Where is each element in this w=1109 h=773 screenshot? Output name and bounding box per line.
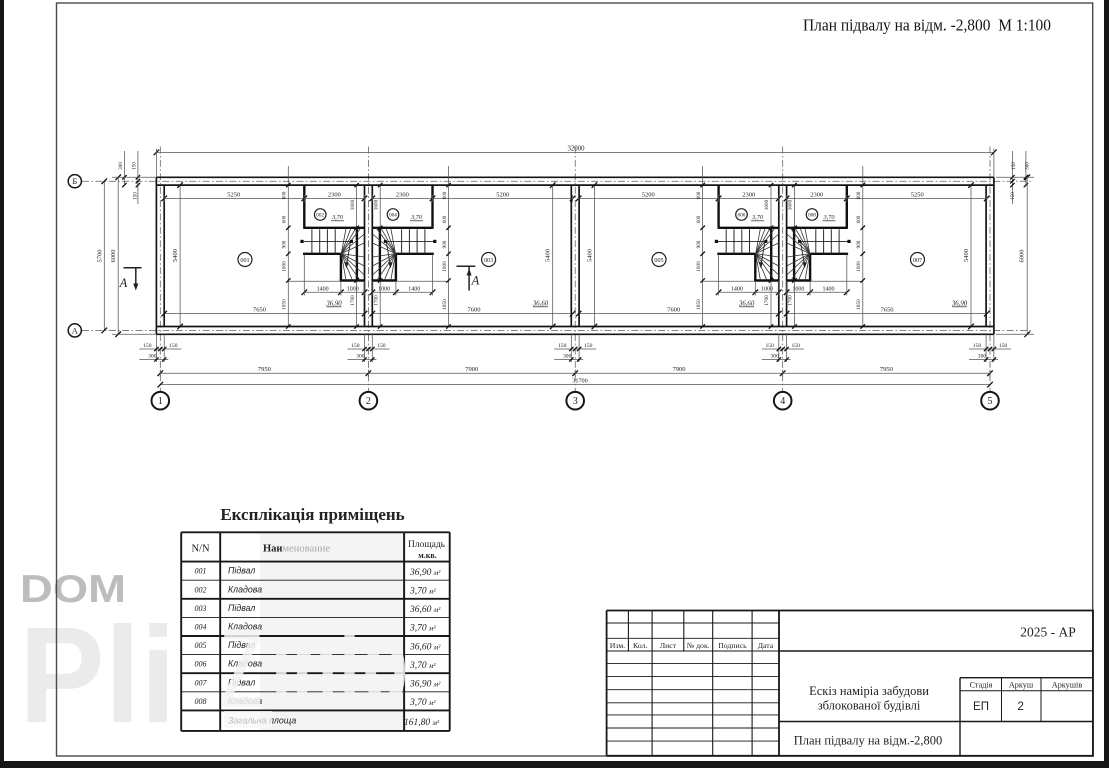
svg-text:3,70 м²: 3,70 м² [409, 624, 436, 634]
svg-text:300: 300 [1024, 162, 1030, 170]
svg-text:1850: 1850 [442, 299, 448, 310]
svg-text:300: 300 [978, 353, 987, 359]
svg-text:003: 003 [484, 257, 493, 264]
svg-text:1000: 1000 [856, 261, 862, 272]
svg-text:N/N: N/N [191, 544, 210, 555]
svg-text:900: 900 [856, 240, 862, 248]
svg-text:900: 900 [282, 240, 288, 248]
svg-text:2: 2 [1017, 701, 1023, 713]
svg-text:5200: 5200 [642, 192, 655, 199]
svg-text:32000: 32000 [568, 146, 586, 153]
svg-text:3,70: 3,70 [751, 214, 764, 221]
svg-text:Аркушів: Аркушів [1052, 681, 1083, 690]
svg-text:1000: 1000 [282, 261, 288, 272]
svg-text:7650: 7650 [881, 307, 894, 314]
svg-text:5400: 5400 [963, 249, 970, 262]
svg-text:004: 004 [195, 623, 207, 632]
svg-text:001: 001 [240, 257, 249, 264]
svg-text:300: 300 [563, 353, 572, 359]
svg-text:300: 300 [771, 353, 780, 359]
svg-text:1400: 1400 [731, 286, 743, 292]
svg-text:008: 008 [195, 697, 207, 706]
svg-text:3,70: 3,70 [410, 214, 423, 221]
svg-text:150: 150 [558, 343, 567, 349]
svg-text:36,60 м²: 36,60 м² [409, 642, 441, 652]
svg-text:900: 900 [696, 240, 702, 248]
svg-text:А: А [471, 274, 480, 288]
svg-text:6000: 6000 [1019, 250, 1026, 263]
svg-text:6000: 6000 [110, 250, 117, 263]
svg-text:36,90: 36,90 [325, 300, 342, 307]
svg-text:800: 800 [696, 191, 702, 199]
svg-text:3,70 м²: 3,70 м² [409, 587, 436, 597]
svg-text:2: 2 [366, 396, 371, 407]
svg-text:150: 150 [132, 162, 138, 170]
svg-text:4: 4 [780, 396, 785, 407]
svg-text:5400: 5400 [545, 249, 552, 262]
svg-text:3,70 м²: 3,70 м² [409, 698, 436, 708]
svg-text:002: 002 [316, 213, 324, 219]
svg-text:001: 001 [195, 567, 207, 576]
svg-text:2300: 2300 [396, 192, 409, 199]
svg-text:Лист: Лист [660, 641, 677, 650]
svg-text:600: 600 [282, 215, 288, 223]
svg-text:Кладова: Кладова [228, 584, 262, 594]
svg-text:1600: 1600 [764, 199, 770, 210]
svg-text:150: 150 [351, 343, 360, 349]
svg-text:5400: 5400 [586, 249, 593, 262]
svg-text:600: 600 [696, 215, 702, 223]
svg-text:150: 150 [132, 192, 138, 200]
svg-text:300: 300 [148, 353, 157, 359]
svg-text:150: 150 [792, 343, 801, 349]
svg-text:5: 5 [988, 396, 993, 407]
svg-text:План підвалу на відм.-2,800: План підвалу на відм.-2,800 [794, 734, 943, 748]
svg-text:150: 150 [999, 343, 1008, 349]
svg-text:Аркуш: Аркуш [1009, 681, 1034, 690]
svg-text:600: 600 [442, 215, 448, 223]
svg-text:Б: Б [72, 176, 77, 186]
svg-text:008: 008 [808, 213, 816, 219]
svg-text:7600: 7600 [667, 307, 680, 314]
svg-text:Площадь: Площадь [408, 540, 446, 550]
svg-text:Підвал: Підвал [228, 603, 255, 613]
svg-text:800: 800 [282, 191, 288, 199]
svg-text:150: 150 [766, 343, 775, 349]
svg-text:7600: 7600 [468, 307, 481, 314]
svg-text:007: 007 [195, 678, 208, 687]
svg-text:ЕП: ЕП [973, 701, 989, 713]
svg-text:150: 150 [1010, 192, 1016, 200]
svg-text:7900: 7900 [465, 366, 478, 373]
svg-text:Подпись: Подпись [718, 641, 747, 650]
svg-text:1850: 1850 [696, 299, 702, 310]
svg-text:150: 150 [1011, 162, 1017, 170]
svg-text:300: 300 [356, 353, 365, 359]
svg-text:3,70 м²: 3,70 м² [409, 661, 436, 671]
svg-text:800: 800 [856, 191, 862, 199]
svg-text:5700: 5700 [96, 250, 103, 263]
svg-text:1700: 1700 [764, 295, 770, 306]
svg-text:5250: 5250 [911, 192, 924, 199]
svg-text:№ док.: № док. [687, 641, 710, 650]
svg-text:150: 150 [143, 343, 152, 349]
svg-text:005: 005 [654, 257, 663, 264]
svg-text:Наименование: Наименование [263, 544, 330, 555]
svg-text:А: А [119, 276, 128, 290]
svg-text:Изм.: Изм. [610, 641, 626, 650]
svg-text:7900: 7900 [673, 366, 686, 373]
svg-text:300: 300 [118, 162, 124, 170]
svg-text:2025 - АР: 2025 - АР [1020, 625, 1076, 640]
svg-text:План підвалу на відм. -2,800: План підвалу на відм. -2,800 М 1:100 [803, 16, 1051, 35]
svg-text:Стадія: Стадія [970, 681, 993, 690]
svg-text:36,90: 36,90 [951, 300, 968, 307]
svg-text:1700: 1700 [350, 295, 356, 306]
svg-text:1: 1 [158, 396, 163, 407]
svg-text:5250: 5250 [227, 192, 240, 199]
svg-text:006: 006 [738, 213, 746, 219]
svg-text:2300: 2300 [742, 192, 755, 199]
svg-text:Pli: Pli [19, 600, 176, 752]
svg-text:Дата: Дата [758, 641, 774, 650]
svg-text:3: 3 [573, 396, 578, 407]
svg-text:36,60 м²: 36,60 м² [409, 605, 441, 615]
svg-text:1000: 1000 [696, 261, 702, 272]
svg-text:2300: 2300 [328, 192, 341, 199]
svg-text:161,80 м²: 161,80 м² [404, 718, 440, 728]
svg-text:7650: 7650 [253, 307, 266, 314]
svg-text:006: 006 [195, 660, 207, 669]
svg-text:31700: 31700 [572, 377, 587, 384]
svg-text:Експлікація приміщень: Експлікація приміщень [220, 505, 404, 524]
svg-text:007: 007 [913, 257, 922, 264]
svg-text:005: 005 [195, 641, 207, 650]
svg-text:36,60: 36,60 [738, 300, 755, 307]
svg-text:600: 600 [856, 215, 862, 223]
svg-text:1700: 1700 [373, 295, 379, 306]
svg-text:36,60: 36,60 [532, 300, 549, 307]
svg-text:1600: 1600 [788, 199, 794, 210]
svg-text:5200: 5200 [496, 192, 509, 199]
svg-text:7950: 7950 [258, 366, 271, 373]
svg-text:150: 150 [377, 343, 386, 349]
svg-text:зблокованої будівлі: зблокованої будівлі [818, 699, 921, 713]
svg-text:5400: 5400 [172, 249, 179, 262]
svg-text:3,70: 3,70 [823, 214, 836, 221]
svg-text:Підвал: Підвал [228, 566, 255, 576]
svg-text:1400: 1400 [317, 286, 329, 292]
svg-text:1700: 1700 [788, 295, 794, 306]
svg-text:1600: 1600 [373, 199, 379, 210]
svg-text:002: 002 [195, 585, 207, 594]
svg-text:003: 003 [195, 604, 207, 613]
svg-text:150: 150 [169, 343, 178, 349]
svg-text:7950: 7950 [880, 366, 893, 373]
svg-text:36,90 м²: 36,90 м² [409, 568, 441, 578]
svg-text:1600: 1600 [350, 199, 356, 210]
svg-text:900: 900 [442, 240, 448, 248]
svg-text:1400: 1400 [408, 286, 420, 292]
svg-text:Ескіз наміріа забудови: Ескіз наміріа забудови [809, 684, 929, 698]
svg-text:150: 150 [584, 343, 593, 349]
svg-text:А: А [72, 325, 79, 335]
svg-text:Кол.: Кол. [633, 641, 647, 650]
svg-text:1850: 1850 [282, 299, 288, 310]
svg-text:3,70: 3,70 [331, 214, 344, 221]
svg-text:800: 800 [442, 191, 448, 199]
svg-text:м.кв.: м.кв. [418, 551, 436, 560]
svg-text:150: 150 [973, 343, 982, 349]
svg-text:1400: 1400 [823, 286, 835, 292]
svg-text:1000: 1000 [442, 261, 448, 272]
svg-text:1850: 1850 [856, 299, 862, 310]
svg-text:36,90 м²: 36,90 м² [409, 680, 441, 690]
svg-text:2300: 2300 [810, 192, 823, 199]
svg-text:004: 004 [389, 213, 397, 219]
